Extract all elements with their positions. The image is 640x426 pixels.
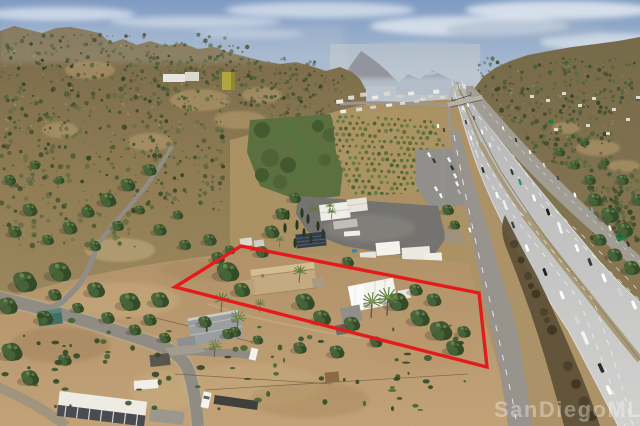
watermark: SanDiegoMLS® <box>494 397 640 422</box>
photo-grain <box>0 0 640 426</box>
aerial-photo: SanDiegoMLS® <box>0 0 640 426</box>
